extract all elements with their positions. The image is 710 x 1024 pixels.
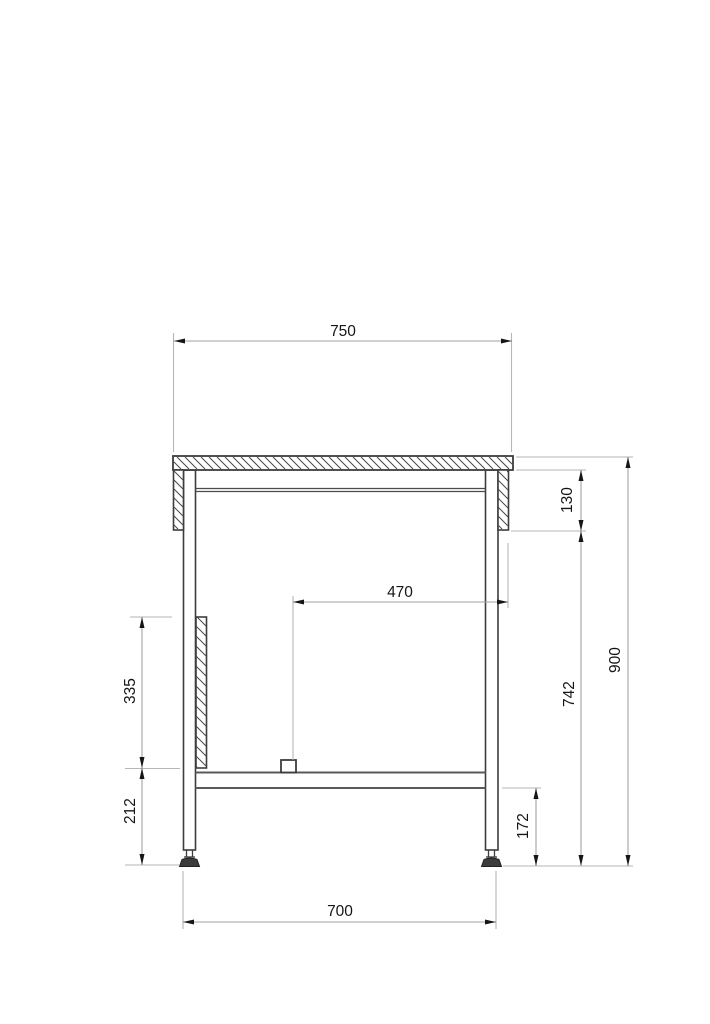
- dim-lower-leg-height-label: 212: [122, 798, 139, 824]
- technical-drawing-canvas: 750 470 700 130 742: [0, 0, 710, 1024]
- dim-leg-outer-span-label: 700: [327, 903, 353, 920]
- hatch-line: [196, 766, 197, 767]
- arrowhead: [140, 757, 145, 768]
- arrowhead: [183, 920, 194, 925]
- dim-shelf-clearance: 172: [502, 788, 541, 866]
- dim-leg-outer-span: 700: [183, 871, 496, 929]
- dim-shelf-clearance-label: 172: [515, 813, 532, 839]
- arrowhead: [579, 470, 584, 481]
- arrowhead: [497, 600, 508, 605]
- dim-apron-height-label: 130: [559, 487, 576, 513]
- arrowhead: [579, 855, 584, 866]
- table-side-elevation-drawing: 750 470 700 130 742: [0, 0, 710, 1024]
- arrowhead: [534, 855, 539, 866]
- shelf-stop-block: [281, 760, 296, 773]
- dim-side-panel-height: 335: [122, 617, 180, 769]
- right-foot: [482, 850, 502, 867]
- arrowhead: [140, 854, 145, 865]
- arrowhead: [626, 855, 631, 866]
- dim-shelf-stop-span-label: 470: [387, 584, 413, 601]
- dim-overall-height-label: 900: [607, 647, 624, 673]
- arrowhead: [579, 531, 584, 542]
- left-foot-pad: [180, 858, 200, 867]
- dim-lower-leg-height: 212: [122, 768, 179, 865]
- arrowhead: [501, 339, 512, 344]
- arrowhead: [293, 600, 304, 605]
- dim-top-width: 750: [174, 323, 513, 452]
- dim-apron-height: 130: [511, 470, 586, 531]
- dim-top-width-label: 750: [330, 323, 356, 340]
- dim-under-top-height: 742: [561, 531, 584, 866]
- hatch-line: [507, 471, 508, 472]
- left-foot: [180, 850, 200, 867]
- dim-overall-height: 900: [503, 457, 633, 866]
- arrowhead: [534, 788, 539, 799]
- right-leg: [486, 470, 499, 850]
- dim-side-panel-height-label: 335: [122, 678, 139, 704]
- arrowhead: [140, 617, 145, 628]
- dim-under-top-height-label: 742: [561, 681, 578, 707]
- table-structure: [173, 456, 513, 867]
- arrowhead: [626, 457, 631, 468]
- right-foot-pad: [482, 858, 502, 867]
- arrowhead: [485, 920, 496, 925]
- left-leg: [184, 470, 196, 850]
- arrowhead: [174, 339, 185, 344]
- dim-shelf-stop-span: 470: [293, 543, 508, 760]
- arrowhead: [579, 520, 584, 531]
- arrowhead: [140, 768, 145, 779]
